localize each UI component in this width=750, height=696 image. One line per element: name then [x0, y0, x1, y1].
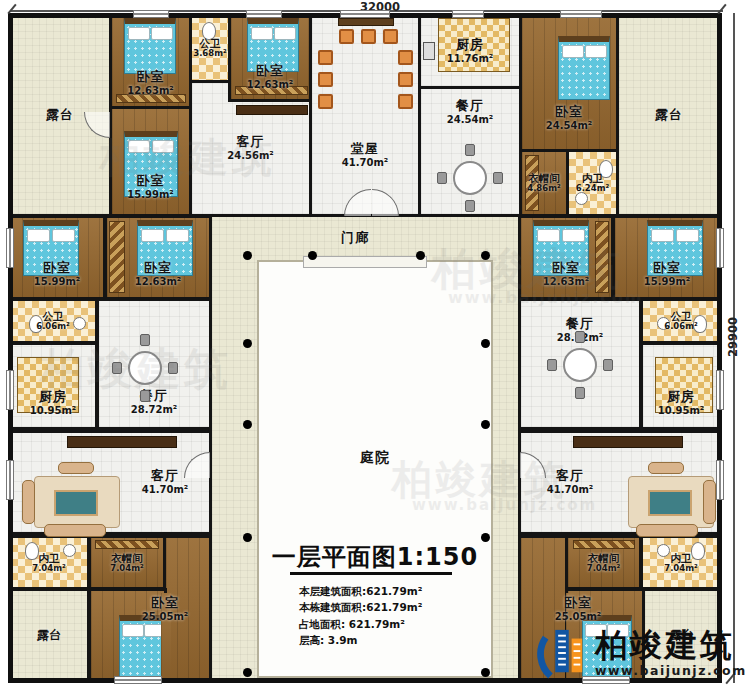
column	[243, 339, 252, 348]
tv-cabinet	[67, 436, 177, 448]
stat-storey-height: 层高: 3.9m	[299, 632, 422, 648]
dining-table	[563, 348, 597, 382]
window	[6, 370, 14, 410]
room-bath-top-right: 内卫6.24m²	[566, 149, 619, 217]
brand-name: 柏竣建筑	[595, 629, 747, 661]
floor-plan: 32000 29900 门廊 庭院 露台 客厅24.56m² 卧室12.63m²	[0, 0, 750, 696]
room-terrace-top-right: 露台	[616, 13, 722, 217]
chair	[437, 172, 447, 184]
room-label-porch: 门廊	[315, 228, 395, 246]
window	[133, 10, 169, 18]
chair	[547, 359, 557, 371]
room-kitchen-top: 厨房11.76m²	[418, 13, 522, 89]
window	[6, 228, 14, 268]
room-closet-top-right: 衣帽间4.86m²	[519, 149, 569, 217]
dimension-tick	[717, 4, 726, 14]
window	[246, 10, 282, 18]
column	[308, 251, 317, 260]
window	[716, 228, 724, 268]
room-bedroom-top-right: 卧室24.54m²	[519, 13, 619, 152]
baijun-logo-icon	[536, 627, 588, 679]
column	[416, 251, 425, 260]
tv-cabinet	[236, 105, 308, 115]
chair	[361, 29, 376, 44]
room-main-hall: 堂屋41.70m²	[309, 13, 421, 217]
plan-title: 一层平面图1:150	[262, 541, 488, 573]
wardrobe	[573, 540, 635, 549]
room-bath-mid-right: 公卫6.06m²	[640, 298, 722, 344]
column	[481, 668, 490, 677]
watermark-text: 柏竣建筑	[100, 130, 276, 185]
chair	[575, 331, 585, 343]
stat-building-area: 本栋建筑面积:621.79m²	[299, 599, 422, 615]
room-bedroom-mid-left-2: 卧室12.63m²	[104, 215, 212, 300]
chair	[603, 359, 613, 371]
altar-table	[338, 18, 394, 26]
column	[243, 668, 252, 677]
room-closet-bottom-right: 衣帽间7.04m²	[565, 535, 642, 590]
sofa	[636, 524, 698, 537]
room-bath-top: 公卫3.68m²	[189, 13, 231, 83]
sink-icon	[73, 317, 86, 330]
brand-logo: 柏竣建筑 www.baijunjz.com	[536, 627, 747, 679]
sofa	[22, 480, 35, 524]
sofa	[648, 462, 684, 474]
column	[481, 251, 490, 260]
window	[560, 10, 602, 18]
chair	[398, 50, 413, 65]
room-kitchen-mid-right: 厨房10.95m²	[640, 342, 722, 430]
window	[452, 10, 484, 18]
chair	[339, 29, 354, 44]
room-bath-mid-left: 公卫6.06m²	[8, 298, 98, 344]
chair	[465, 144, 475, 156]
brand-text-block: 柏竣建筑 www.baijunjz.com	[595, 629, 747, 678]
stove-icon	[423, 42, 435, 60]
chair	[383, 29, 398, 44]
watermark-url: www.baijunjz.com	[412, 496, 597, 514]
wardrobe	[95, 540, 159, 549]
watermark-text: 柏竣建筑	[40, 340, 232, 399]
dining-table	[453, 161, 487, 195]
chair	[318, 50, 333, 65]
room-label-bedroom-bottom-right: 卧室25.05m²	[528, 596, 628, 622]
room-bedroom-tl-2: 卧室12.63m²	[228, 13, 312, 102]
chair	[493, 172, 503, 184]
room-bedroom-mid-left-1: 卧室15.99m²	[8, 215, 106, 300]
column	[243, 533, 252, 542]
coffee-table	[648, 490, 692, 516]
window	[716, 370, 724, 410]
wardrobe	[109, 221, 125, 293]
room-terrace-bottom-left: 露台	[8, 588, 90, 683]
bed	[124, 18, 176, 74]
room-closet-bottom-left: 衣帽间7.04m²	[88, 535, 166, 590]
chair	[465, 200, 475, 212]
chair	[318, 72, 333, 87]
window	[114, 676, 162, 684]
window	[716, 460, 724, 500]
room-bath-bottom-left: 内卫7.04m²	[8, 535, 90, 590]
sofa	[44, 524, 106, 537]
watermark-url: www.baijunjz.com	[448, 288, 643, 307]
entry-step	[303, 256, 427, 268]
sofa	[58, 462, 94, 474]
window	[340, 10, 390, 18]
dimension-height-label: 29900	[726, 306, 740, 368]
plan-stats: 本层建筑面积:621.79m² 本栋建筑面积:621.79m² 占地面积: 62…	[299, 583, 422, 648]
brand-url: www.baijunjz.com	[595, 663, 747, 678]
stat-footprint-area: 占地面积: 621.79m²	[299, 616, 422, 632]
chair	[575, 387, 585, 399]
stat-floor-area: 本层建筑面积:621.79m²	[299, 583, 422, 599]
column	[243, 420, 252, 429]
coffee-table	[54, 490, 98, 516]
tv-cabinet	[573, 436, 683, 448]
column	[481, 339, 490, 348]
room-bath-bottom-right: 内卫7.04m²	[640, 535, 722, 590]
column	[481, 420, 490, 429]
window	[6, 460, 14, 500]
room-bedroom-tl-1: 卧室12.63m²	[109, 13, 192, 109]
chair	[318, 94, 333, 109]
room-label-bedroom-bottom-left: 卧室25.05m²	[115, 596, 215, 622]
title-underline	[290, 572, 452, 575]
bed	[558, 36, 610, 100]
sofa	[703, 480, 716, 524]
sink-icon	[575, 192, 588, 205]
chair	[398, 72, 413, 87]
chair	[398, 94, 413, 109]
column	[243, 251, 252, 260]
